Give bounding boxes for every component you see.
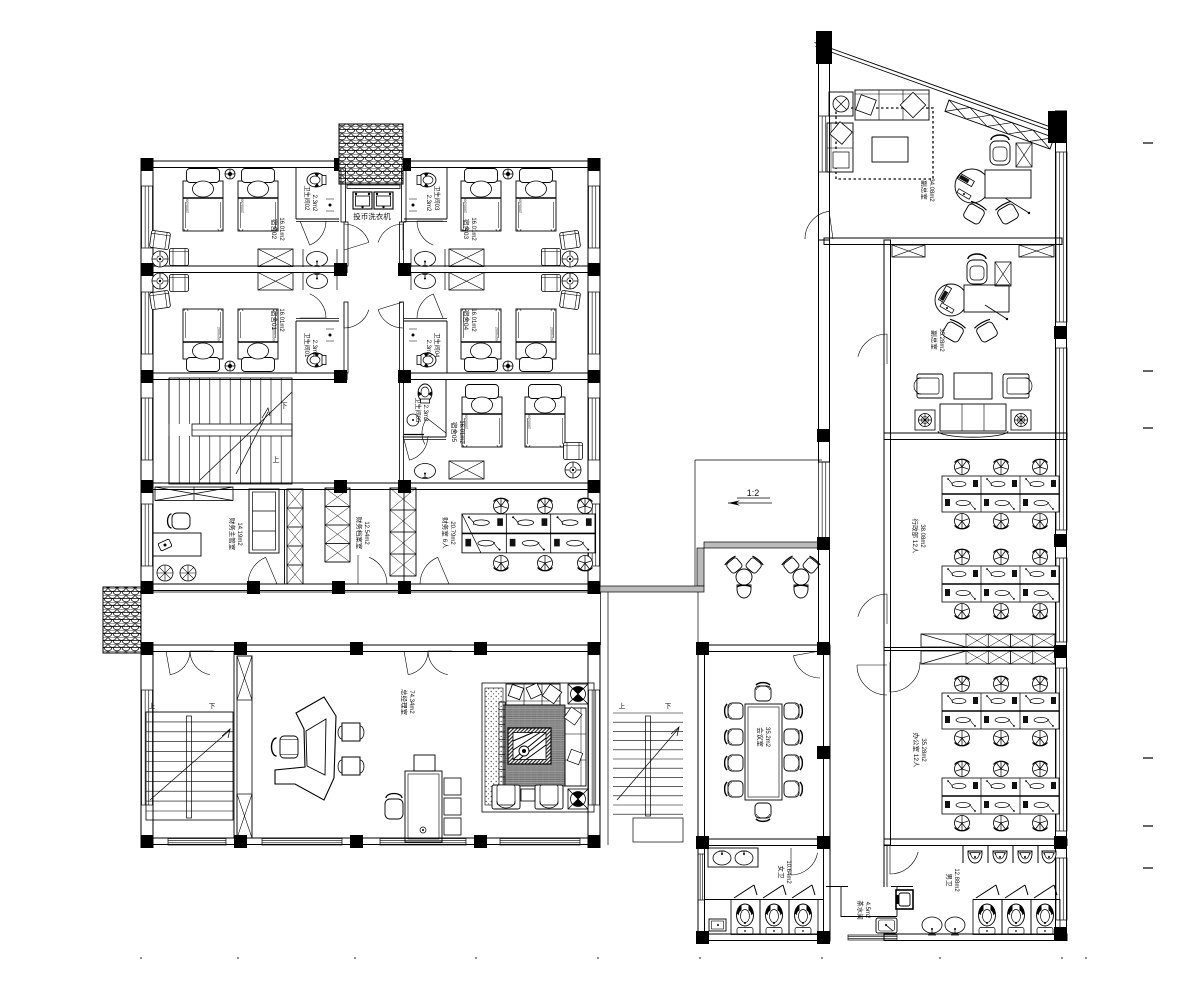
svg-text:74.34m2: 74.34m2 [408,690,414,714]
svg-text:16.01m2: 16.01m2 [278,217,284,241]
svg-text:14.19m2: 14.19m2 [236,522,242,546]
svg-text:卫生间03: 卫生间03 [433,186,441,211]
svg-text:2.3m2: 2.3m2 [425,195,431,212]
svg-text:宿舍01: 宿舍01 [270,310,279,331]
svg-text:上: 上 [619,701,626,710]
svg-text:2.3m2: 2.3m2 [311,195,317,212]
svg-text:4.5m2: 4.5m2 [864,902,870,919]
svg-text:上: 上 [273,455,280,464]
svg-text:12.54m2: 12.54m2 [363,521,369,545]
svg-text:16.01m2: 16.01m2 [470,308,476,332]
svg-text:财务室 6人: 财务室 6人 [441,517,450,549]
svg-text:10.64m2: 10.64m2 [785,860,791,884]
svg-text:2.3m2: 2.3m2 [425,340,431,357]
svg-text:副总室: 副总室 [920,180,929,200]
svg-text:宿舍02: 宿舍02 [270,219,279,240]
svg-text:16.01m2: 16.01m2 [458,420,464,444]
svg-text:卫生间04: 卫生间04 [433,333,441,358]
svg-text:卫生间05: 卫生间05 [414,398,422,423]
svg-text:办公室 12人: 办公室 12人 [912,732,921,768]
svg-text:会议室: 会议室 [756,727,765,747]
svg-text:财务主管室: 财务主管室 [228,518,237,551]
svg-text:宿舍05: 宿舍05 [450,422,459,443]
svg-text:下: 下 [665,702,672,710]
svg-text:宿舍03: 宿舍03 [462,219,471,240]
svg-text:20.79m2: 20.79m2 [449,521,455,545]
svg-text:38.08m2: 38.08m2 [919,524,925,548]
svg-text:投币洗衣机: 投币洗衣机 [353,211,391,221]
svg-text:35.28m2: 35.28m2 [938,328,944,352]
svg-text:行政部 12人: 行政部 12人 [911,518,920,554]
svg-text:12.88m2: 12.88m2 [953,868,959,892]
svg-text:宿舍04: 宿舍04 [462,310,471,331]
svg-text:2.3m2: 2.3m2 [311,340,317,357]
svg-text:34.08m2: 34.08m2 [928,178,934,202]
svg-text:财务档案室: 财务档案室 [355,517,364,550]
svg-text:卫生间01: 卫生间01 [303,333,311,358]
svg-text:35.2m2: 35.2m2 [764,727,770,748]
svg-text:35.28m2: 35.28m2 [920,738,926,762]
svg-text:2.3m2: 2.3m2 [422,405,428,422]
svg-text:1:2: 1:2 [747,488,760,498]
svg-text:上: 上 [149,701,156,710]
svg-text:下: 下 [281,402,288,410]
svg-text:女卫: 女卫 [777,866,786,880]
svg-text:卫生间02: 卫生间02 [303,186,311,211]
svg-text:茶水间: 茶水间 [856,900,865,920]
svg-text:总经理室: 总经理室 [400,689,409,716]
svg-text:男卫: 男卫 [945,874,953,888]
svg-text:下: 下 [209,702,216,710]
svg-text:副总室: 副总室 [930,330,939,350]
svg-text:16.01m2: 16.01m2 [278,308,284,332]
svg-text:16.01m2: 16.01m2 [470,217,476,241]
